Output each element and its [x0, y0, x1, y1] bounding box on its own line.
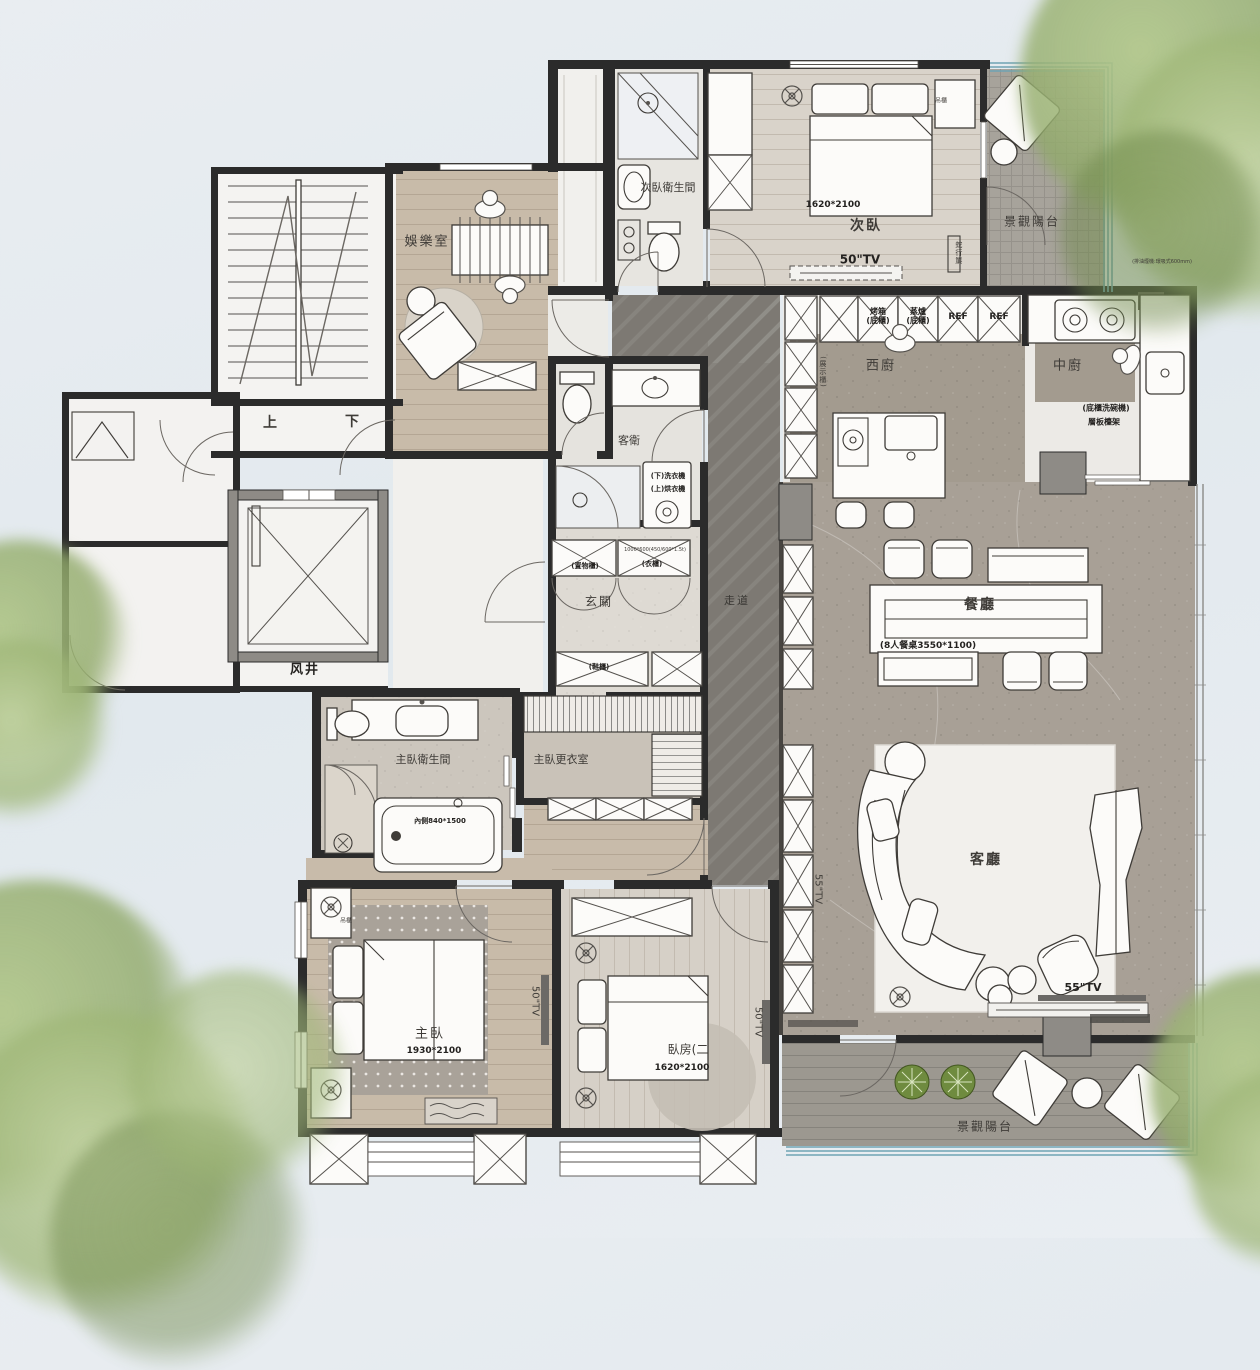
floor-plan-drawing [0, 0, 1260, 1238]
floor-plan-canvas: 娛樂室 次臥衛生間 次臥 1620*2100 50"TV 吊櫃 蛇行簾 景觀陽台… [0, 0, 1260, 1238]
elevator [248, 490, 368, 644]
